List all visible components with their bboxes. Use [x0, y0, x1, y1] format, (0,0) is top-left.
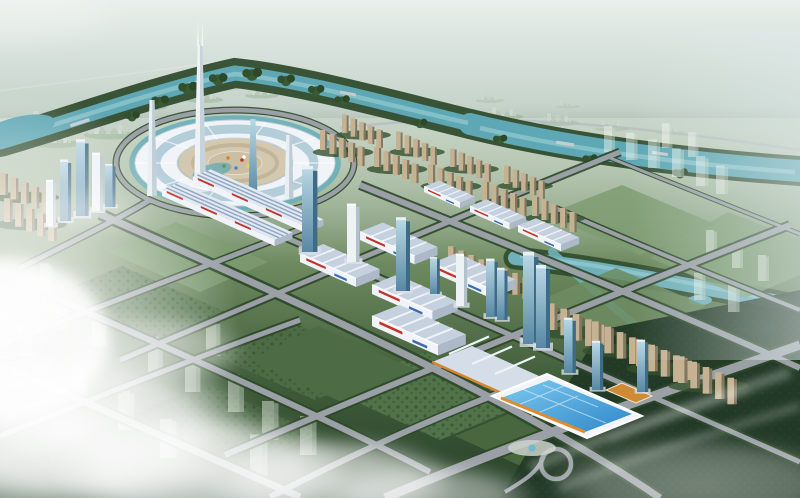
master-plan-rendering: [0, 0, 800, 498]
rendering-viewport: [0, 0, 800, 498]
fountain: [529, 445, 536, 452]
right-haze: [630, 30, 800, 360]
